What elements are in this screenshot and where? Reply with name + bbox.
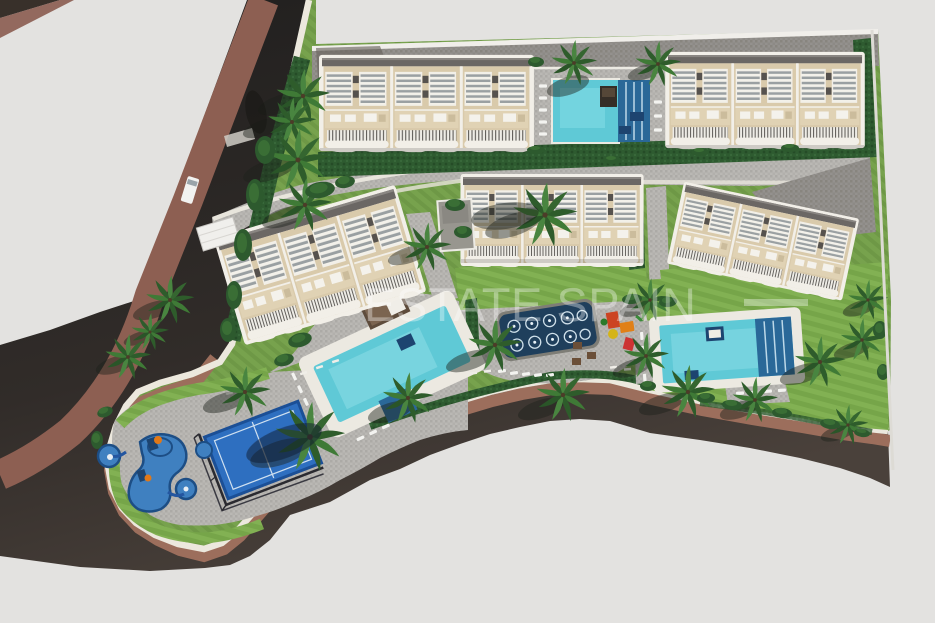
- svg-text:ESTATE SPAIN: ESTATE SPAIN: [364, 278, 696, 331]
